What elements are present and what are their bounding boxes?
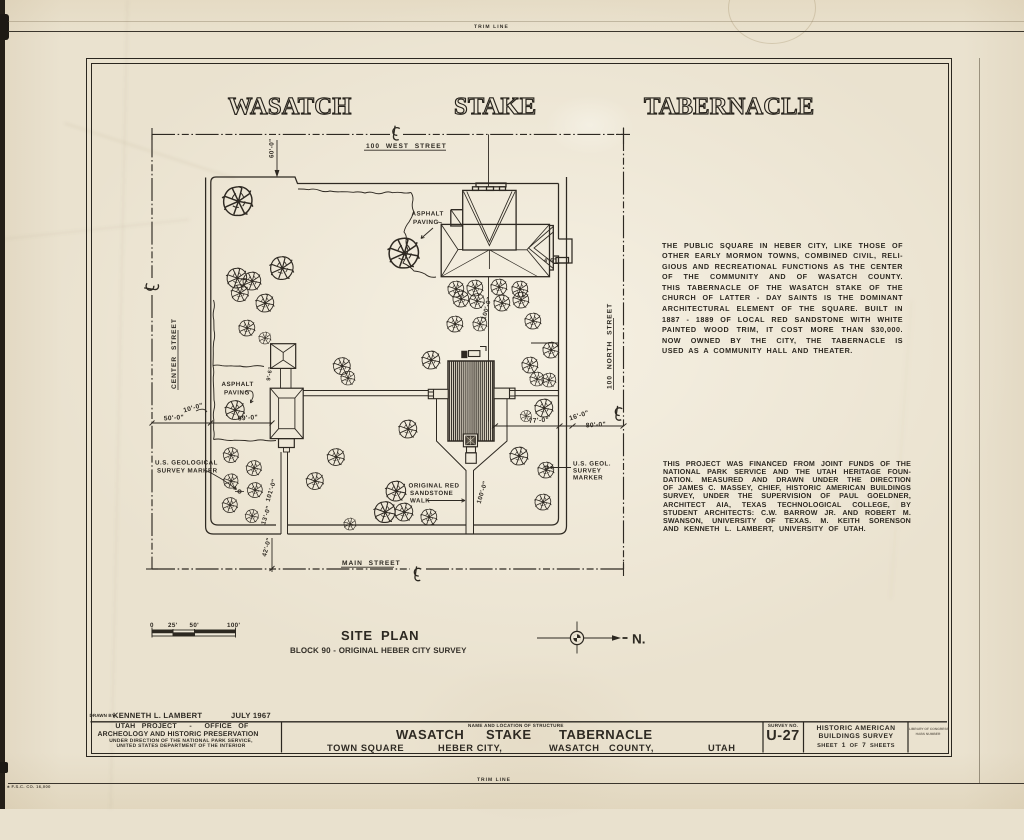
svg-text:50': 50' [190, 622, 200, 629]
svg-text:ASPHALT: ASPHALT [412, 211, 444, 218]
svg-text:ASPHALT: ASPHALT [222, 381, 254, 388]
svg-text:60'-0": 60'-0" [269, 139, 276, 159]
svg-text:100'-0": 100'-0" [481, 296, 494, 320]
svg-text:SURVEY: SURVEY [573, 468, 602, 475]
svg-text:WALK: WALK [410, 498, 430, 505]
svg-text:U.S. GEOLOGICAL: U.S. GEOLOGICAL [155, 460, 218, 467]
svg-text:MARKER: MARKER [573, 475, 603, 482]
svg-text:80'-0": 80'-0" [586, 421, 607, 429]
svg-text:100': 100' [227, 622, 241, 629]
svg-text:4'-6": 4'-6" [544, 258, 556, 264]
svg-text:100'-0": 100'-0" [476, 480, 490, 504]
svg-text:PAVING: PAVING [224, 390, 250, 397]
svg-text:42'-0": 42'-0" [261, 537, 273, 558]
svg-text:10'-0": 10'-0" [183, 402, 204, 414]
svg-text:U.S. GEOL.: U.S. GEOL. [573, 461, 611, 468]
svg-text:25': 25' [168, 622, 178, 629]
svg-text:ORIGINAL RED: ORIGINAL RED [409, 483, 460, 490]
svg-text:N.: N. [632, 632, 646, 647]
svg-text:77'-0": 77'-0" [529, 417, 550, 425]
svg-text:SURVEY MARKER: SURVEY MARKER [157, 468, 218, 475]
svg-text:100 WEST STREET: 100 WEST STREET [366, 143, 447, 150]
svg-text:PAVING: PAVING [413, 219, 439, 226]
svg-text:CENTER STREET: CENTER STREET [171, 318, 178, 389]
svg-text:101'-0": 101'-0" [265, 478, 279, 502]
svg-text:100 NORTH STREET: 100 NORTH STREET [607, 303, 614, 389]
svg-text:MAIN STREET: MAIN STREET [342, 560, 401, 567]
svg-text:SANDSTONE: SANDSTONE [410, 490, 453, 497]
svg-text:50'-0": 50'-0" [164, 414, 185, 422]
svg-text:0: 0 [150, 622, 154, 629]
svg-text:13'-0": 13'-0" [260, 505, 272, 526]
svg-text:69'-0": 69'-0" [238, 414, 259, 422]
svg-text:9'-6": 9'-6" [266, 366, 274, 381]
svg-text:16'-0": 16'-0" [568, 409, 589, 422]
